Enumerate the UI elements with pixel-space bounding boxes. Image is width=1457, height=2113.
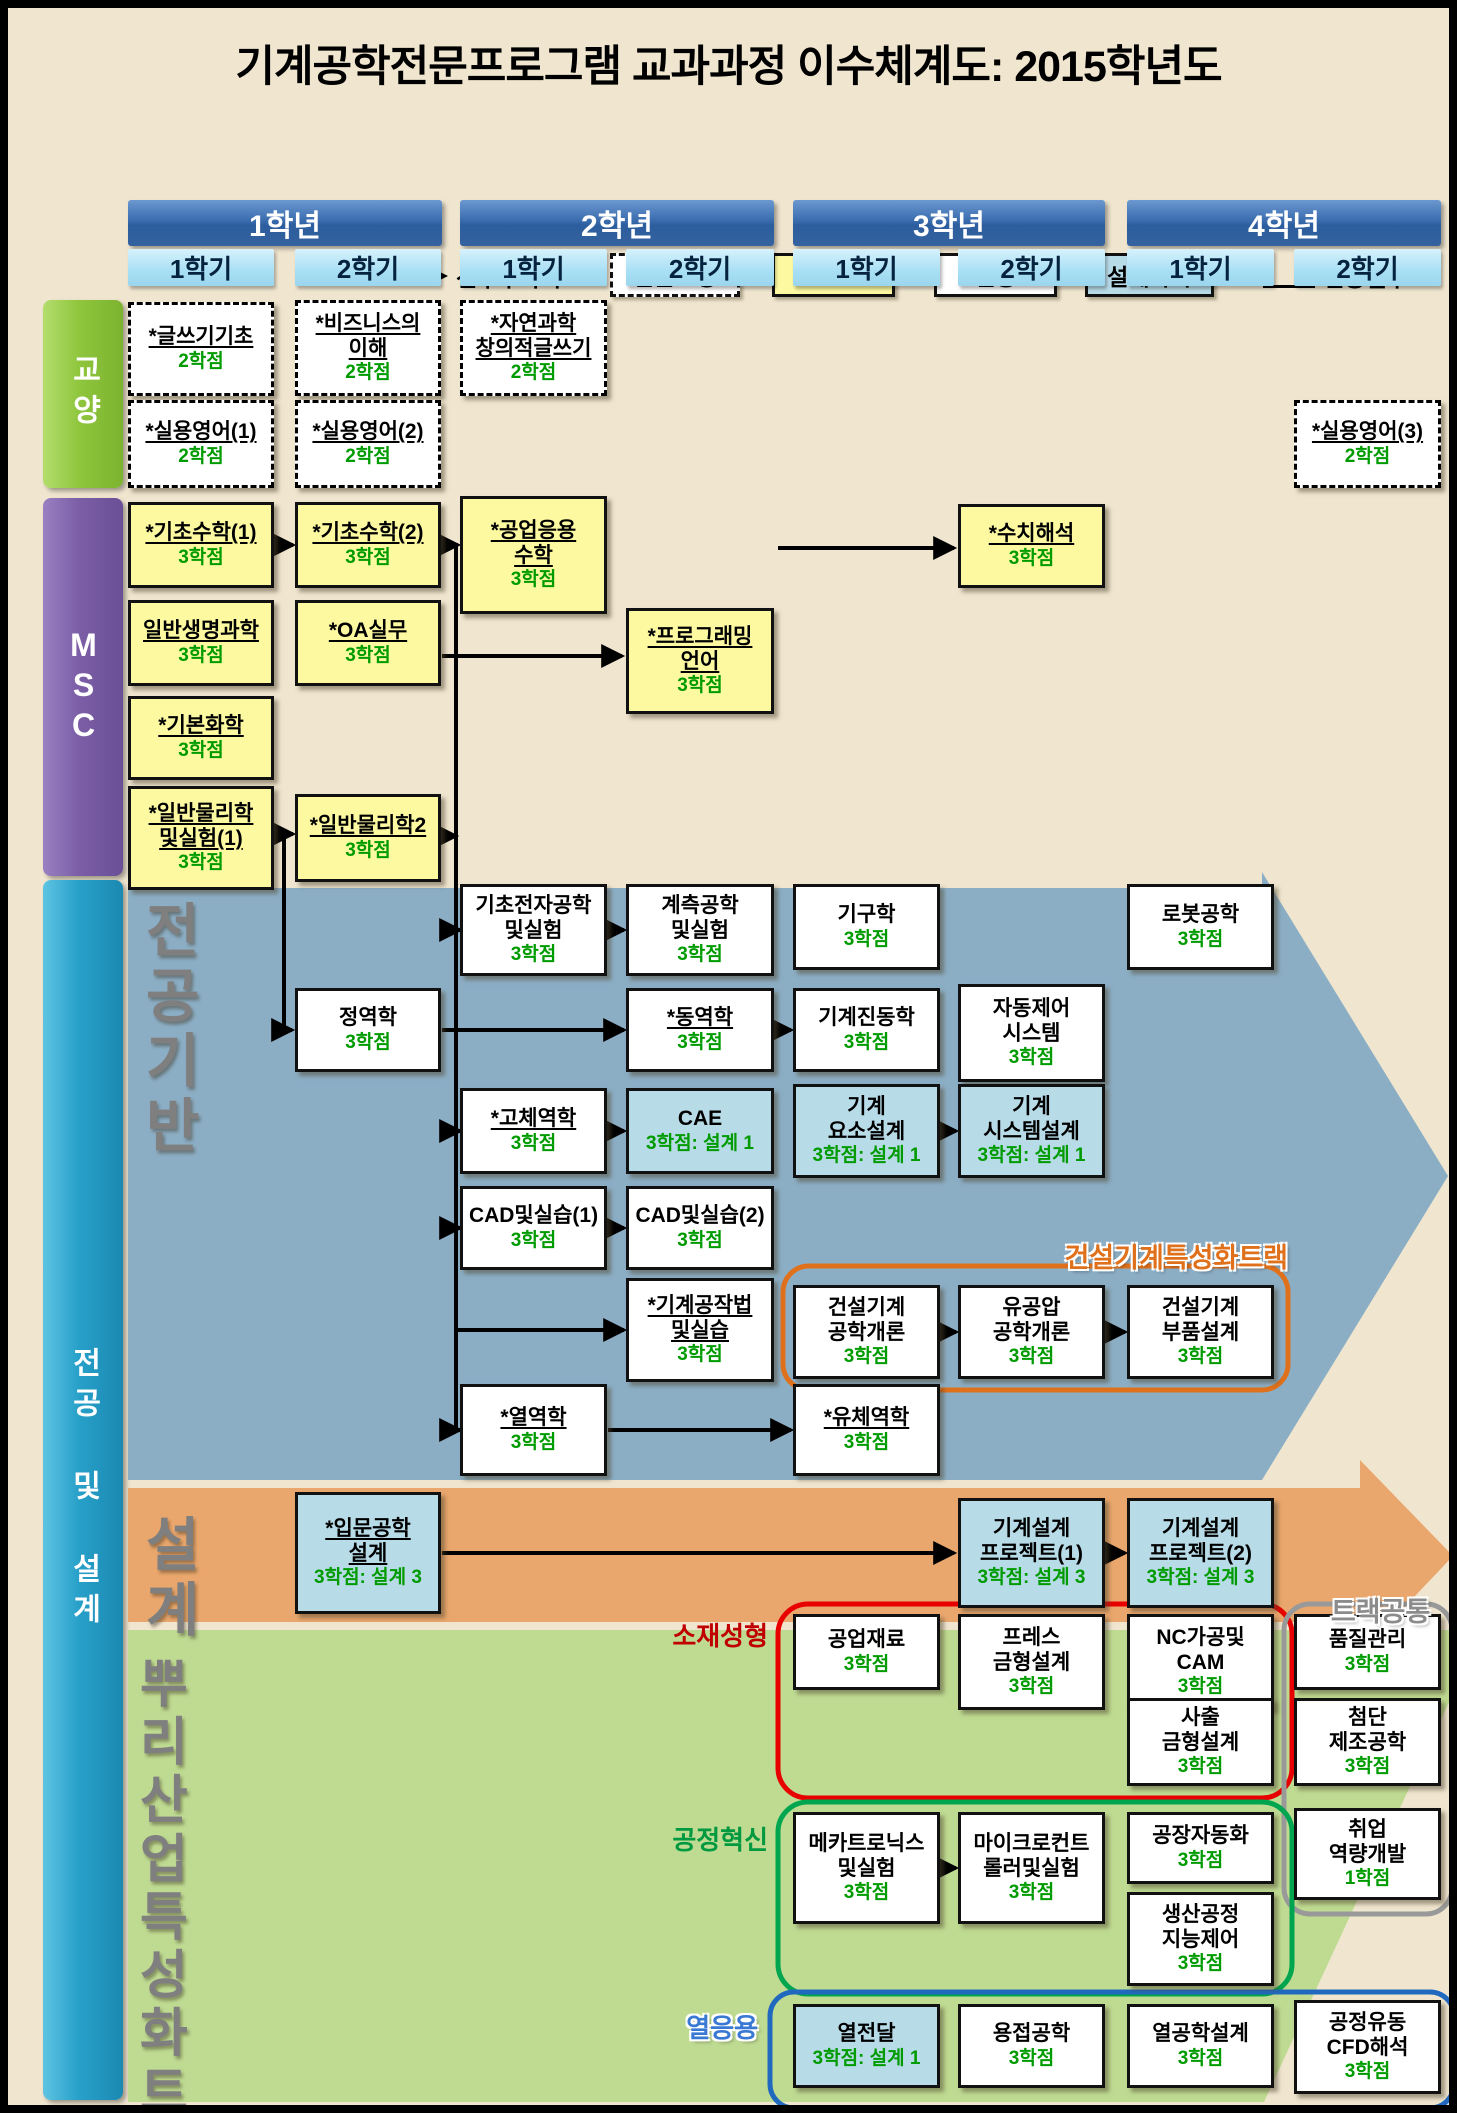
course-credit: 3학점	[844, 1033, 890, 1054]
label-thermal: 열응용	[628, 2008, 758, 2045]
course-name: 금형설계	[1162, 1731, 1239, 1755]
course-credit: 3학점	[844, 930, 890, 951]
course-credit: 3학점	[844, 1433, 890, 1454]
course-name: *실용영어(1)	[145, 420, 256, 444]
course-name: 금형설계	[993, 1651, 1070, 1675]
course-name: 용접공학	[993, 2022, 1070, 2046]
course-box: *공업응용수학3학점	[460, 496, 607, 614]
course-name: 기계	[847, 1095, 886, 1119]
course-credit: 3학점	[1009, 1347, 1055, 1368]
course-name: *자연과학	[491, 312, 576, 336]
course-box: 메카트로닉스및실험3학점	[793, 1812, 940, 1924]
course-box: 계측공학및실험3학점	[626, 884, 774, 976]
course-box: 공정유동CFD해석3학점	[1294, 2000, 1441, 2094]
label-construction-track: 건설기계특성화트랙	[998, 1236, 1288, 1275]
course-credit: 3학점: 설계 1	[813, 2049, 921, 2070]
course-credit: 3학점	[1178, 1954, 1224, 1975]
course-box: 취업역량개발1학점	[1294, 1808, 1441, 1900]
course-box: 생산공정지능제어3학점	[1127, 1892, 1274, 1986]
course-name: 공업재료	[828, 1628, 905, 1652]
course-name: 건설기계	[828, 1296, 905, 1320]
course-name: 기계	[1012, 1095, 1051, 1119]
course-credit: 3학점	[178, 646, 224, 667]
course-box: 열전달3학점: 설계 1	[793, 2004, 940, 2088]
course-name: 지능제어	[1162, 1928, 1239, 1952]
course-box: 기초전자공학및실험3학점	[460, 884, 607, 976]
course-name: 및실험(1)	[159, 827, 243, 851]
course-box: 정역학3학점	[295, 988, 441, 1072]
course-box: 기계설계프로젝트(2)3학점: 설계 3	[1127, 1498, 1274, 1608]
course-box: NC가공및CAM3학점	[1127, 1614, 1274, 1710]
course-name: CAE	[678, 1107, 722, 1131]
course-box: *기본화학3학점	[128, 696, 274, 780]
course-name: 및실험	[838, 1857, 896, 1881]
course-credit: 3학점: 설계 1	[813, 1146, 921, 1167]
course-credit: 3학점: 설계 1	[646, 1134, 754, 1155]
course-box: 기계요소설계3학점: 설계 1	[793, 1084, 940, 1178]
course-credit: 3학점	[677, 1345, 723, 1366]
course-credit: 3학점	[1009, 549, 1055, 570]
course-name: *공업응용	[491, 519, 576, 543]
course-name: 설계	[349, 1542, 388, 1566]
label-track-common: 트랙공통	[1308, 1590, 1453, 1629]
course-name: 프로젝트(1)	[980, 1542, 1083, 1566]
course-box: 공장자동화3학점	[1127, 1812, 1274, 1884]
course-credit: 3학점	[178, 548, 224, 569]
course-credit: 3학점	[1009, 1883, 1055, 1904]
course-credit: 3학점	[1178, 1757, 1224, 1778]
course-name: 로봇공학	[1162, 903, 1239, 927]
course-credit: 3학점	[844, 1883, 890, 1904]
course-credit: 1학점	[1345, 1869, 1391, 1890]
course-name: 이해	[349, 337, 388, 361]
course-box: *실용영어(3)2학점	[1294, 400, 1441, 488]
course-credit: 3학점: 설계 3	[978, 1568, 1086, 1589]
course-box: *유체역학3학점	[793, 1384, 940, 1476]
course-name: 프로젝트(2)	[1149, 1542, 1252, 1566]
course-credit: 3학점	[1345, 1757, 1391, 1778]
course-box: *실용영어(1)2학점	[128, 400, 274, 488]
course-box: 용접공학3학점	[958, 2004, 1105, 2088]
course-box: 기계진동학3학점	[793, 988, 940, 1072]
curriculum-flowchart: 기계공학전문프로그램 교과과정 이수체계도: 2015학년도 선후수과목 전문교…	[0, 0, 1457, 2113]
course-name: 품질관리	[1329, 1628, 1406, 1652]
course-name: *기초수학(1)	[145, 521, 256, 545]
course-name: *실용영어(3)	[1312, 420, 1423, 444]
course-box: 마이크로컨트롤러및실험3학점	[958, 1812, 1105, 1924]
course-box: 첨단제조공학3학점	[1294, 1698, 1441, 1786]
course-box: *프로그래밍언어3학점	[626, 608, 774, 714]
course-box: 프레스금형설계3학점	[958, 1614, 1105, 1710]
course-credit: 3학점	[345, 841, 391, 862]
course-box: *수치해석3학점	[958, 504, 1105, 588]
course-box: 로봇공학3학점	[1127, 884, 1274, 970]
course-credit: 3학점	[844, 1347, 890, 1368]
course-box: 유공압공학개론3학점	[958, 1285, 1105, 1379]
course-name: 및실험	[505, 919, 563, 943]
course-name: 열전달	[838, 2022, 896, 2046]
course-name: *OA실무	[329, 619, 407, 643]
course-name: *비즈니스의	[316, 312, 421, 336]
course-credit: 3학점	[511, 1433, 557, 1454]
course-name: 언어	[681, 650, 720, 674]
course-box: *일반물리학및실험(1)3학점	[128, 786, 274, 890]
label-process-innovation: 공정혁신	[638, 1820, 768, 1857]
course-credit: 3학점	[677, 676, 723, 697]
course-name: 기계설계	[1162, 1517, 1239, 1541]
course-name: 마이크로컨트	[974, 1832, 1090, 1856]
course-name: CAM	[1177, 1651, 1225, 1675]
course-box: CAE3학점: 설계 1	[626, 1088, 774, 1174]
course-credit: 3학점	[178, 741, 224, 762]
course-box: 기계설계프로젝트(1)3학점: 설계 3	[958, 1498, 1105, 1608]
course-credit: 2학점	[345, 447, 391, 468]
course-name: 기구학	[838, 903, 896, 927]
course-credit: 3학점	[677, 1033, 723, 1054]
course-name: 요소설계	[828, 1120, 905, 1144]
course-credit: 3학점	[1178, 1347, 1224, 1368]
course-name: *기계공작법	[648, 1294, 753, 1318]
course-credit: 3학점	[178, 853, 224, 874]
course-name: 기계설계	[993, 1517, 1070, 1541]
course-box: *입문공학설계3학점: 설계 3	[295, 1492, 441, 1614]
course-name: 계측공학	[661, 894, 738, 918]
course-credit: 3학점	[677, 1231, 723, 1252]
course-name: 취업	[1348, 1818, 1387, 1842]
course-name: 공장자동화	[1152, 1824, 1249, 1848]
course-box: *일반물리학23학점	[295, 794, 441, 882]
course-box: *기초수학(2)3학점	[295, 502, 441, 588]
course-name: *수치해석	[989, 522, 1074, 546]
course-name: 기초전자공학	[476, 894, 592, 918]
course-credit: 2학점	[1345, 447, 1391, 468]
course-name: 및실험	[671, 919, 729, 943]
course-name: 수학	[514, 544, 553, 568]
course-credit: 3학점	[345, 646, 391, 667]
course-credit: 3학점	[677, 945, 723, 966]
course-name: 공정유동	[1329, 2011, 1406, 2035]
course-name: 건설기계	[1162, 1296, 1239, 1320]
course-name: *고체역학	[491, 1107, 576, 1131]
course-box: *자연과학창의적글쓰기2학점	[460, 300, 607, 396]
course-credit: 3학점	[1345, 1655, 1391, 1676]
course-credit: 3학점	[1009, 1677, 1055, 1698]
course-name: *유체역학	[824, 1406, 909, 1430]
course-credit: 3학점	[511, 945, 557, 966]
course-name: *글쓰기기초	[149, 325, 254, 349]
course-box: 건설기계공학개론3학점	[793, 1285, 940, 1379]
course-credit: 2학점	[178, 447, 224, 468]
prerequisite-arrow	[284, 834, 292, 1030]
course-name: 첨단	[1348, 1706, 1387, 1730]
course-name: *실용영어(2)	[312, 420, 423, 444]
course-box: 기구학3학점	[793, 884, 940, 970]
course-name: *기본화학	[158, 714, 243, 738]
course-name: 역량개발	[1329, 1843, 1406, 1867]
course-box: 자동제어시스템3학점	[958, 984, 1105, 1082]
course-credit: 2학점	[345, 363, 391, 384]
course-credit: 3학점	[511, 1231, 557, 1252]
course-credit: 3학점	[1178, 1677, 1224, 1698]
course-box: *OA실무3학점	[295, 600, 441, 686]
course-name: CAD및실습(1)	[469, 1204, 598, 1228]
course-box: 건설기계부품설계3학점	[1127, 1285, 1274, 1379]
course-credit: 3학점	[345, 548, 391, 569]
course-name: 및실습	[671, 1319, 729, 1343]
course-box: *동역학3학점	[626, 988, 774, 1072]
course-box: *실용영어(2)2학점	[295, 400, 441, 488]
course-box: *비즈니스의이해2학점	[295, 300, 441, 396]
course-box: *기초수학(1)3학점	[128, 502, 274, 588]
course-name: NC가공및	[1156, 1626, 1244, 1650]
course-name: 롤러및실험	[983, 1857, 1080, 1881]
course-name: *열역학	[500, 1406, 566, 1430]
course-name: *프로그래밍	[648, 625, 753, 649]
course-name: 기계진동학	[818, 1006, 915, 1030]
course-name: 메카트로닉스	[809, 1832, 925, 1856]
course-name: *동역학	[667, 1006, 733, 1030]
course-credit: 3학점	[511, 570, 557, 591]
course-name: 생산공정	[1162, 1903, 1239, 1927]
course-credit: 2학점	[511, 363, 557, 384]
course-name: 제조공학	[1329, 1731, 1406, 1755]
course-credit: 3학점	[1178, 930, 1224, 951]
course-name: *일반물리학2	[310, 814, 426, 838]
course-name: 시스템	[1003, 1022, 1061, 1046]
course-box: CAD및실습(1)3학점	[460, 1186, 607, 1270]
course-name: 창의적글쓰기	[476, 337, 592, 361]
course-credit: 3학점: 설계 1	[978, 1146, 1086, 1167]
course-box: *기계공작법및실습3학점	[626, 1278, 774, 1382]
course-credit: 3학점	[1009, 2049, 1055, 2070]
label-material-forming: 소재성형	[638, 1616, 768, 1653]
course-name: CAD및실습(2)	[635, 1204, 764, 1228]
course-name: *일반물리학	[149, 802, 254, 826]
course-credit: 3학점	[1009, 1048, 1055, 1069]
course-name: 유공압	[1003, 1296, 1061, 1320]
course-box: 열공학설계3학점	[1127, 2004, 1274, 2088]
course-box: 기계시스템설계3학점: 설계 1	[958, 1084, 1105, 1178]
course-name: 자동제어	[993, 997, 1070, 1021]
course-box: 일반생명과학3학점	[128, 600, 274, 686]
course-name: 정역학	[339, 1006, 397, 1030]
course-credit: 3학점: 설계 3	[314, 1568, 422, 1589]
course-credit: 3학점	[1345, 2062, 1391, 2083]
course-name: 사출	[1181, 1706, 1220, 1730]
course-name: 부품설계	[1162, 1321, 1239, 1345]
course-name: 공학개론	[993, 1321, 1070, 1345]
course-box: *글쓰기기초2학점	[128, 302, 274, 396]
course-name: 프레스	[1003, 1626, 1061, 1650]
course-name: *입문공학	[325, 1517, 410, 1541]
course-name: *기초수학(2)	[312, 521, 423, 545]
course-name: 열공학설계	[1152, 2022, 1249, 2046]
course-credit: 2학점	[178, 352, 224, 373]
course-name: 시스템설계	[983, 1120, 1080, 1144]
course-credit: 3학점	[1178, 2049, 1224, 2070]
course-name: 공학개론	[828, 1321, 905, 1345]
course-box: CAD및실습(2)3학점	[626, 1186, 774, 1270]
course-box: 공업재료3학점	[793, 1614, 940, 1690]
course-box: 사출금형설계3학점	[1127, 1698, 1274, 1786]
course-name: 일반생명과학	[143, 619, 259, 643]
course-credit: 3학점	[511, 1134, 557, 1155]
course-box: *고체역학3학점	[460, 1088, 607, 1174]
course-credit: 3학점: 설계 3	[1147, 1568, 1255, 1589]
course-credit: 3학점	[345, 1033, 391, 1054]
course-credit: 3학점	[844, 1655, 890, 1676]
course-credit: 3학점	[1178, 1851, 1224, 1872]
course-box: *열역학3학점	[460, 1384, 607, 1476]
course-name: CFD해석	[1327, 2036, 1409, 2060]
